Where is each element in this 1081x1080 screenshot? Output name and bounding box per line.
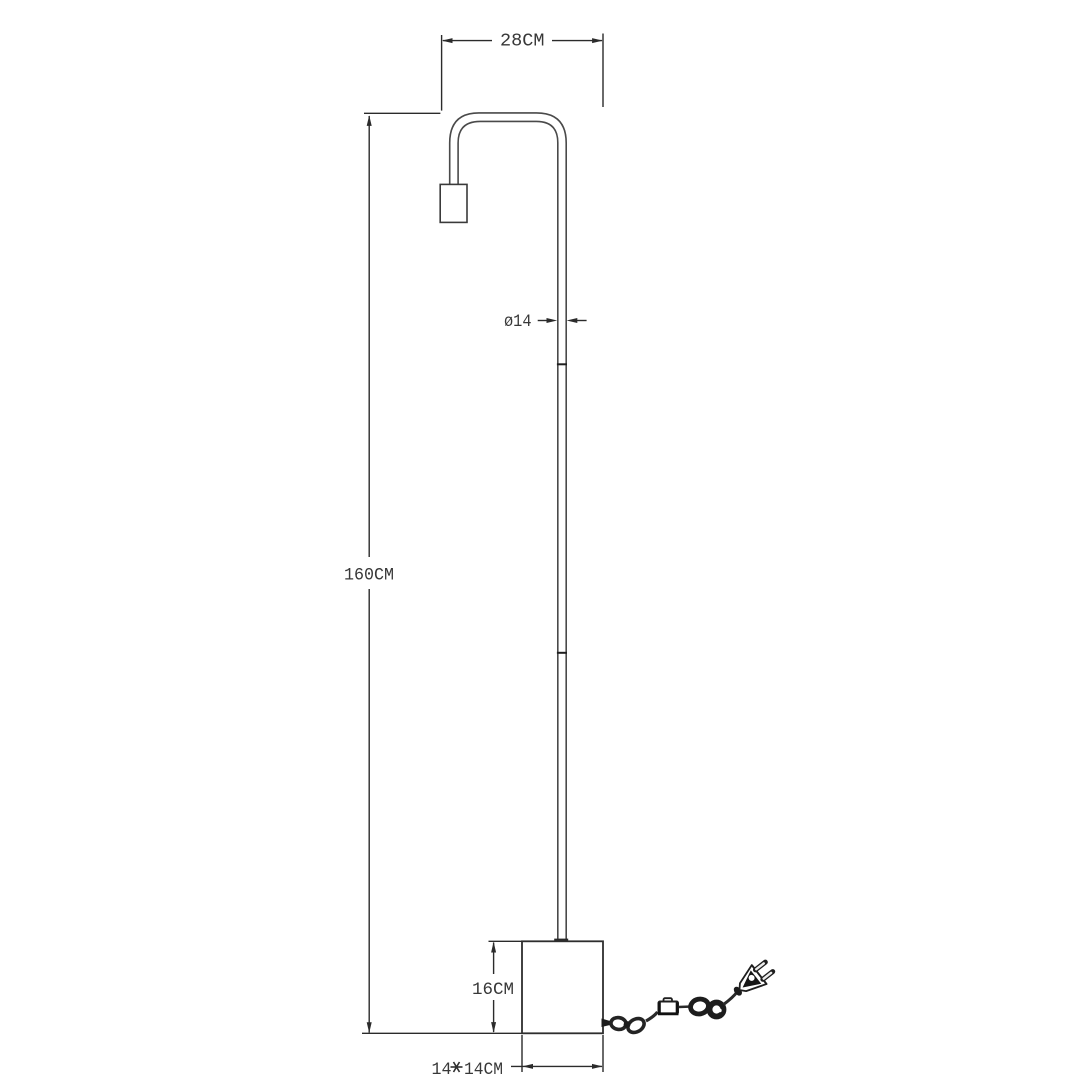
svg-text:16CM: 16CM [472,980,514,1000]
svg-text:28CM: 28CM [500,32,545,52]
svg-text:160CM: 160CM [344,566,394,586]
svg-text:14: 14 [432,1061,452,1080]
svg-text:ø14: ø14 [504,313,532,332]
svg-text:14CM: 14CM [464,1061,503,1080]
